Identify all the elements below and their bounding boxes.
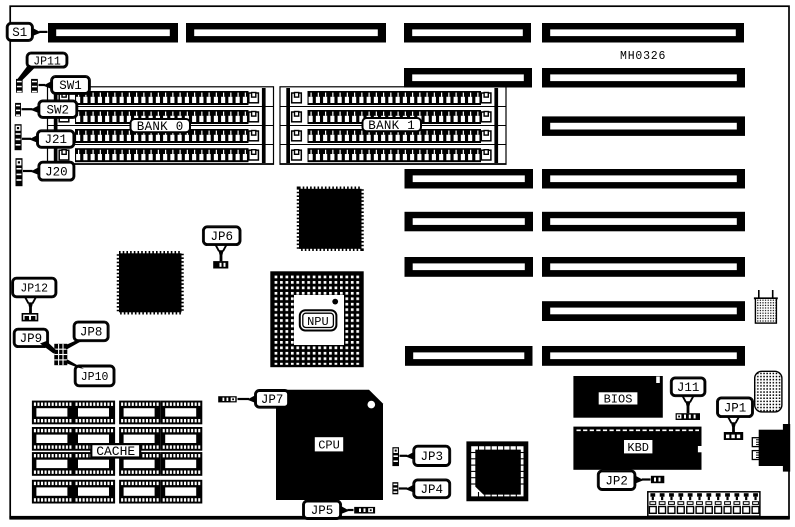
svg-text:SW1: SW1	[59, 79, 82, 93]
svg-text:CACHE: CACHE	[96, 444, 135, 459]
svg-text:JP3: JP3	[421, 450, 444, 464]
svg-text:J20: J20	[45, 165, 68, 179]
svg-text:JP6: JP6	[210, 230, 233, 244]
svg-text:J21: J21	[44, 133, 67, 147]
svg-text:JP5: JP5	[311, 504, 334, 518]
svg-text:KBD: KBD	[627, 441, 649, 455]
svg-text:CPU: CPU	[318, 439, 340, 453]
svg-text:JP9: JP9	[20, 332, 43, 346]
svg-text:NPU: NPU	[307, 315, 329, 329]
svg-text:BIOS: BIOS	[604, 392, 633, 406]
svg-text:MH0326: MH0326	[620, 50, 666, 63]
svg-text:JP11: JP11	[33, 55, 61, 68]
svg-text:JP7: JP7	[261, 393, 284, 407]
svg-text:S1: S1	[12, 26, 27, 40]
svg-text:J11: J11	[677, 381, 700, 395]
svg-text:JP2: JP2	[605, 474, 628, 488]
svg-text:JP10: JP10	[81, 371, 109, 384]
svg-text:JP1: JP1	[724, 401, 747, 415]
svg-text:JP8: JP8	[80, 326, 103, 340]
svg-text:BANK 1: BANK 1	[368, 119, 415, 133]
svg-text:SW2: SW2	[47, 103, 70, 117]
svg-text:BANK 0: BANK 0	[137, 120, 184, 134]
svg-text:JP4: JP4	[421, 483, 444, 497]
svg-text:JP12: JP12	[20, 283, 48, 296]
